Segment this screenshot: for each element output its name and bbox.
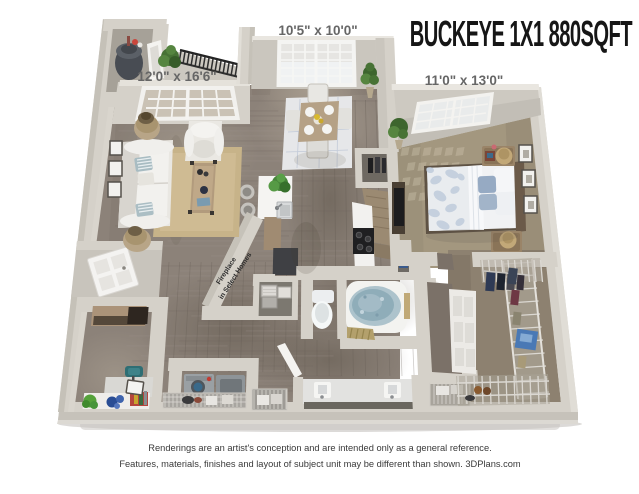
svg-text:10'5" x 10'0": 10'5" x 10'0" (278, 23, 357, 38)
svg-text:12'0" x 16'6": 12'0" x 16'6" (137, 69, 216, 84)
svg-text:Renderings are an artist's con: Renderings are an artist's conception an… (148, 443, 491, 453)
svg-text:BUCKEYE 1X1 880SQFT: BUCKEYE 1X1 880SQFT (410, 15, 633, 54)
svg-text:11'0" x 13'0": 11'0" x 13'0" (425, 73, 504, 88)
svg-text:Features, materials, finishes: Features, materials, finishes and layout… (119, 459, 521, 469)
